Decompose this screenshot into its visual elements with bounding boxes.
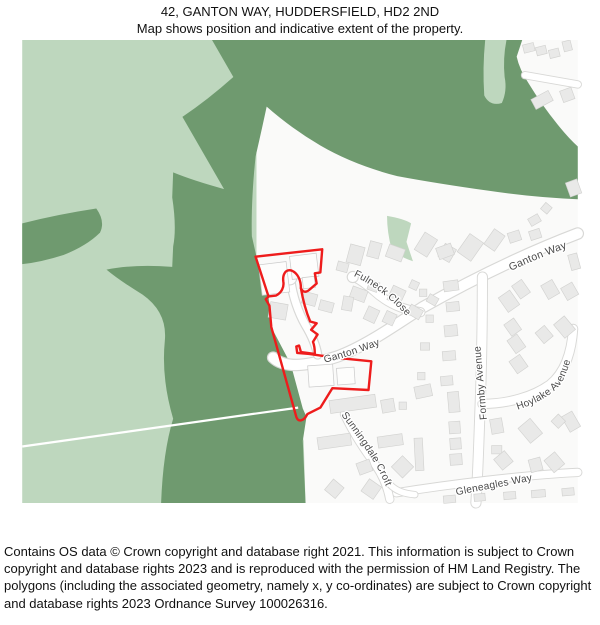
property-map-svg: Fulneck Close Ganton Way Ganton Way Form… (0, 40, 600, 540)
map-subtitle: Map shows position and indicative extent… (0, 20, 600, 37)
map-header: 42, GANTON WAY, HUDDERSFIELD, HD2 2ND Ma… (0, 0, 600, 40)
map-canvas: Fulneck Close Ganton Way Ganton Way Form… (0, 40, 600, 540)
copyright-footer: Contains OS data © Crown copyright and d… (0, 540, 600, 612)
property-address-title: 42, GANTON WAY, HUDDERSFIELD, HD2 2ND (0, 3, 600, 20)
